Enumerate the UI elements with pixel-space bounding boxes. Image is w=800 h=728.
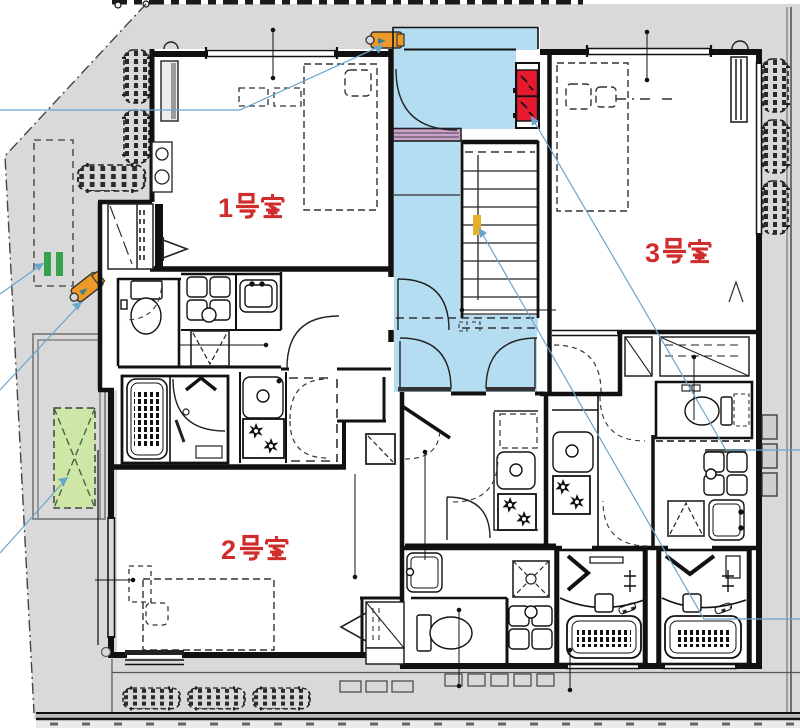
svg-text:2: 2 bbox=[221, 535, 236, 565]
svg-text:1: 1 bbox=[218, 193, 233, 223]
svg-text:3: 3 bbox=[645, 238, 660, 268]
